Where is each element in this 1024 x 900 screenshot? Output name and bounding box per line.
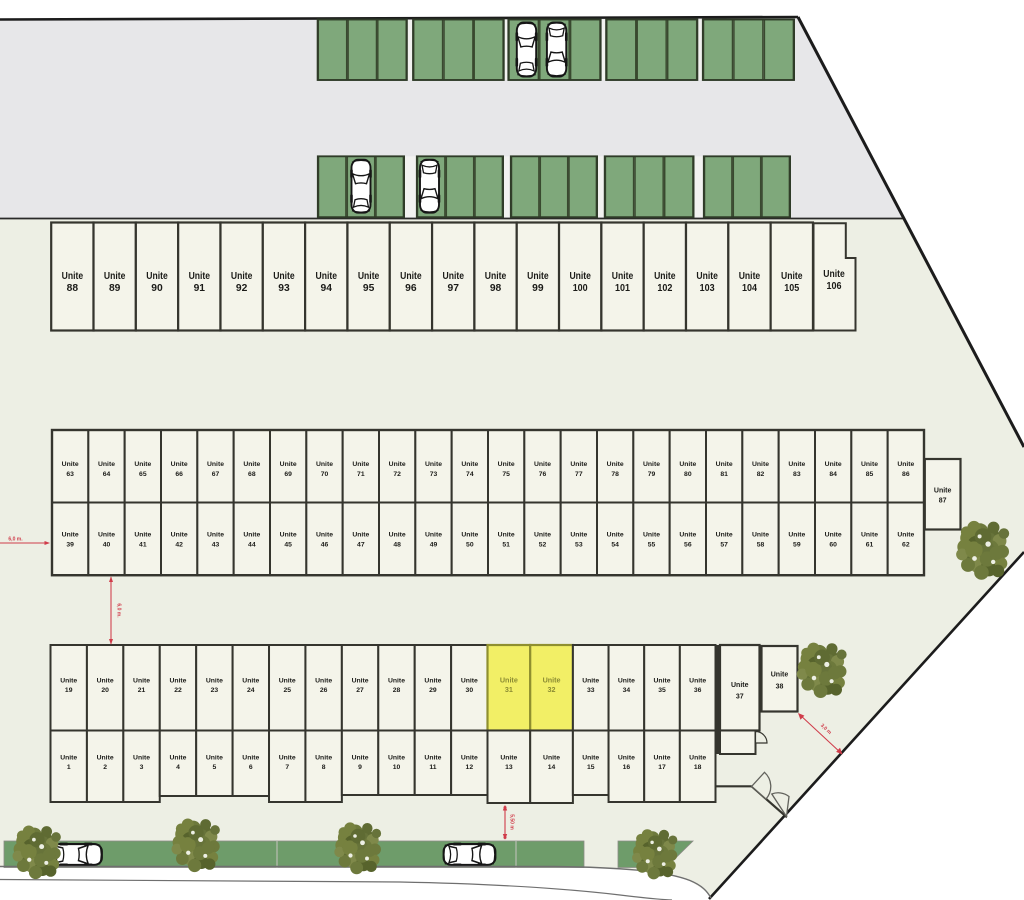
- svg-text:Unite: Unite: [388, 755, 405, 762]
- svg-text:5,50 m: 5,50 m: [509, 814, 515, 830]
- svg-text:103: 103: [700, 283, 715, 294]
- svg-text:Unite: Unite: [352, 678, 369, 685]
- svg-text:Unite: Unite: [134, 532, 151, 539]
- svg-text:Unite: Unite: [716, 532, 733, 539]
- svg-text:Unite: Unite: [582, 755, 599, 762]
- svg-text:87: 87: [939, 498, 947, 505]
- svg-text:95: 95: [363, 283, 375, 294]
- svg-text:53: 53: [575, 542, 583, 549]
- svg-text:Unite: Unite: [206, 678, 223, 685]
- svg-text:76: 76: [539, 471, 547, 478]
- svg-text:Unite: Unite: [618, 755, 635, 762]
- svg-text:Unite: Unite: [500, 755, 517, 762]
- svg-text:Unite: Unite: [461, 755, 478, 762]
- svg-text:69: 69: [284, 471, 292, 478]
- svg-text:40: 40: [103, 542, 111, 549]
- svg-text:1: 1: [67, 764, 71, 771]
- svg-text:Unite: Unite: [731, 682, 749, 689]
- svg-text:80: 80: [684, 471, 692, 478]
- svg-text:93: 93: [278, 283, 290, 294]
- svg-text:33: 33: [587, 687, 595, 694]
- svg-text:Unite: Unite: [543, 755, 560, 762]
- svg-text:Unite: Unite: [60, 755, 77, 762]
- svg-text:Unite: Unite: [498, 461, 515, 468]
- svg-text:Unite: Unite: [62, 461, 79, 468]
- svg-text:Unite: Unite: [788, 532, 805, 539]
- svg-text:Unite: Unite: [485, 271, 507, 282]
- svg-text:71: 71: [357, 471, 365, 478]
- svg-text:31: 31: [505, 685, 513, 694]
- svg-text:37: 37: [736, 694, 744, 701]
- svg-text:82: 82: [757, 471, 765, 478]
- svg-text:Unite: Unite: [424, 755, 441, 762]
- svg-text:6,0 m.: 6,0 m.: [8, 537, 23, 543]
- svg-text:96: 96: [405, 283, 417, 294]
- svg-text:Unite: Unite: [97, 678, 114, 685]
- svg-text:Unite: Unite: [352, 532, 369, 539]
- svg-text:47: 47: [357, 542, 365, 549]
- svg-text:55: 55: [648, 542, 656, 549]
- svg-text:Unite: Unite: [897, 461, 914, 468]
- svg-text:44: 44: [248, 542, 256, 549]
- svg-text:14: 14: [548, 764, 556, 771]
- svg-text:Unite: Unite: [134, 461, 151, 468]
- svg-text:13: 13: [505, 764, 513, 771]
- svg-text:Unite: Unite: [716, 461, 733, 468]
- svg-text:18: 18: [694, 764, 702, 771]
- svg-text:42: 42: [175, 542, 183, 549]
- svg-text:68: 68: [248, 471, 256, 478]
- svg-text:Unite: Unite: [352, 755, 369, 762]
- svg-text:Unite: Unite: [315, 678, 332, 685]
- svg-text:Unite: Unite: [679, 461, 696, 468]
- svg-text:15: 15: [587, 764, 595, 771]
- svg-text:Unite: Unite: [206, 755, 223, 762]
- svg-text:Unite: Unite: [389, 461, 406, 468]
- svg-text:49: 49: [430, 542, 438, 549]
- svg-text:Unite: Unite: [315, 755, 332, 762]
- svg-text:28: 28: [393, 687, 401, 694]
- svg-text:Unite: Unite: [643, 532, 660, 539]
- svg-text:7: 7: [285, 764, 289, 771]
- svg-text:102: 102: [657, 283, 672, 294]
- svg-text:Unite: Unite: [643, 461, 660, 468]
- svg-text:84: 84: [829, 471, 837, 478]
- svg-text:90: 90: [151, 283, 163, 294]
- svg-text:65: 65: [139, 471, 147, 478]
- svg-text:45: 45: [284, 542, 292, 549]
- svg-text:Unite: Unite: [582, 678, 599, 685]
- svg-text:4: 4: [176, 764, 180, 771]
- svg-text:Unite: Unite: [752, 532, 769, 539]
- svg-text:Unite: Unite: [861, 532, 878, 539]
- svg-text:70: 70: [321, 471, 329, 478]
- svg-text:Unite: Unite: [352, 461, 369, 468]
- svg-text:94: 94: [321, 283, 333, 294]
- svg-text:105: 105: [784, 283, 799, 294]
- svg-text:Unite: Unite: [689, 678, 706, 685]
- svg-text:91: 91: [194, 283, 206, 294]
- svg-text:Unite: Unite: [98, 532, 115, 539]
- svg-text:Unite: Unite: [242, 678, 259, 685]
- svg-text:Unite: Unite: [279, 755, 296, 762]
- svg-text:Unite: Unite: [442, 271, 464, 282]
- svg-text:Unite: Unite: [618, 678, 635, 685]
- svg-text:Unite: Unite: [425, 532, 442, 539]
- svg-text:Unite: Unite: [280, 532, 297, 539]
- svg-text:8: 8: [322, 764, 326, 771]
- svg-text:Unite: Unite: [146, 271, 168, 282]
- svg-text:104: 104: [742, 283, 757, 294]
- svg-text:Unite: Unite: [316, 532, 333, 539]
- svg-text:Unite: Unite: [570, 532, 587, 539]
- svg-text:75: 75: [502, 471, 510, 478]
- svg-text:Unite: Unite: [823, 269, 845, 280]
- svg-text:Unite: Unite: [62, 532, 79, 539]
- svg-text:62: 62: [902, 542, 910, 549]
- svg-text:27: 27: [356, 687, 364, 694]
- svg-text:Unite: Unite: [171, 532, 188, 539]
- svg-text:52: 52: [539, 542, 547, 549]
- svg-text:Unite: Unite: [461, 532, 478, 539]
- svg-text:21: 21: [138, 687, 146, 694]
- svg-text:88: 88: [67, 283, 79, 294]
- svg-text:89: 89: [109, 283, 121, 294]
- svg-text:25: 25: [283, 687, 291, 694]
- svg-text:48: 48: [393, 542, 401, 549]
- svg-text:46: 46: [321, 542, 329, 549]
- svg-text:92: 92: [236, 283, 248, 294]
- svg-text:73: 73: [430, 471, 438, 478]
- svg-text:74: 74: [466, 471, 474, 478]
- svg-text:Unite: Unite: [771, 672, 789, 679]
- svg-text:Unite: Unite: [825, 532, 842, 539]
- svg-text:Unite: Unite: [861, 461, 878, 468]
- svg-text:17: 17: [658, 764, 666, 771]
- svg-text:6,0 m.: 6,0 m.: [116, 603, 122, 618]
- svg-text:Unite: Unite: [500, 676, 518, 685]
- svg-text:59: 59: [793, 542, 801, 549]
- svg-text:Unite: Unite: [498, 532, 515, 539]
- svg-text:66: 66: [175, 471, 183, 478]
- svg-text:97: 97: [448, 283, 460, 294]
- svg-text:11: 11: [429, 764, 436, 771]
- svg-text:Unite: Unite: [389, 532, 406, 539]
- svg-text:98: 98: [490, 283, 502, 294]
- svg-text:9: 9: [358, 764, 362, 771]
- svg-text:101: 101: [615, 283, 630, 294]
- svg-text:106: 106: [827, 281, 842, 292]
- svg-text:Unite: Unite: [207, 532, 224, 539]
- svg-text:2: 2: [103, 764, 107, 771]
- svg-text:Unite: Unite: [461, 678, 478, 685]
- svg-text:Unite: Unite: [569, 271, 591, 282]
- svg-text:54: 54: [611, 542, 619, 549]
- svg-text:5: 5: [212, 764, 216, 771]
- svg-text:51: 51: [502, 542, 510, 549]
- svg-text:77: 77: [575, 471, 583, 478]
- svg-text:23: 23: [211, 687, 219, 694]
- svg-text:32: 32: [548, 685, 556, 694]
- svg-text:63: 63: [66, 471, 74, 478]
- svg-text:Unite: Unite: [358, 271, 380, 282]
- svg-text:3: 3: [140, 764, 144, 771]
- svg-text:43: 43: [212, 542, 220, 549]
- svg-text:Unite: Unite: [607, 532, 624, 539]
- svg-text:Unite: Unite: [654, 678, 671, 685]
- svg-text:Unite: Unite: [169, 755, 186, 762]
- svg-text:Unite: Unite: [752, 461, 769, 468]
- svg-text:Unite: Unite: [133, 678, 150, 685]
- svg-text:Unite: Unite: [104, 271, 126, 282]
- svg-text:Unite: Unite: [934, 488, 952, 495]
- svg-text:29: 29: [429, 687, 437, 694]
- svg-text:Unite: Unite: [570, 461, 587, 468]
- svg-text:72: 72: [393, 471, 401, 478]
- svg-text:50: 50: [466, 542, 474, 549]
- svg-text:6: 6: [249, 764, 253, 771]
- svg-text:22: 22: [174, 687, 182, 694]
- svg-text:Unite: Unite: [825, 461, 842, 468]
- svg-text:20: 20: [101, 687, 109, 694]
- svg-text:Unite: Unite: [242, 755, 259, 762]
- svg-text:Unite: Unite: [654, 271, 676, 282]
- svg-text:19: 19: [65, 687, 73, 694]
- svg-text:78: 78: [611, 471, 619, 478]
- svg-text:Unite: Unite: [739, 271, 761, 282]
- svg-text:Unite: Unite: [534, 461, 551, 468]
- svg-text:41: 41: [139, 542, 147, 549]
- svg-text:12: 12: [466, 764, 474, 771]
- svg-text:Unite: Unite: [316, 461, 333, 468]
- svg-text:34: 34: [623, 687, 631, 694]
- svg-text:56: 56: [684, 542, 692, 549]
- svg-text:35: 35: [658, 687, 666, 694]
- svg-text:61: 61: [866, 542, 874, 549]
- svg-text:10: 10: [393, 764, 401, 771]
- svg-text:Unite: Unite: [207, 461, 224, 468]
- svg-text:Unite: Unite: [400, 271, 422, 282]
- svg-text:Unite: Unite: [97, 755, 114, 762]
- svg-text:Unite: Unite: [527, 271, 549, 282]
- svg-text:Unite: Unite: [133, 755, 150, 762]
- svg-text:Unite: Unite: [273, 271, 295, 282]
- svg-text:64: 64: [103, 471, 111, 478]
- svg-text:Unite: Unite: [781, 271, 803, 282]
- svg-text:Unite: Unite: [231, 271, 253, 282]
- svg-text:100: 100: [573, 283, 588, 294]
- svg-text:Unite: Unite: [788, 461, 805, 468]
- svg-text:58: 58: [757, 542, 765, 549]
- svg-text:Unite: Unite: [607, 461, 624, 468]
- svg-text:24: 24: [247, 687, 255, 694]
- svg-text:Unite: Unite: [189, 271, 211, 282]
- svg-text:Unite: Unite: [243, 532, 260, 539]
- svg-text:Unite: Unite: [60, 678, 77, 685]
- svg-text:60: 60: [829, 542, 837, 549]
- svg-text:16: 16: [623, 764, 631, 771]
- svg-text:Unite: Unite: [171, 461, 188, 468]
- svg-text:83: 83: [793, 471, 801, 478]
- svg-text:Unite: Unite: [534, 532, 551, 539]
- svg-text:Unite: Unite: [388, 678, 405, 685]
- svg-text:30: 30: [466, 687, 474, 694]
- svg-text:Unite: Unite: [612, 271, 634, 282]
- svg-text:36: 36: [694, 687, 702, 694]
- svg-text:Unite: Unite: [169, 678, 186, 685]
- svg-text:39: 39: [66, 542, 74, 549]
- svg-text:Unite: Unite: [689, 755, 706, 762]
- svg-text:26: 26: [320, 687, 328, 694]
- svg-text:85: 85: [866, 471, 874, 478]
- svg-text:Unite: Unite: [696, 271, 718, 282]
- svg-text:79: 79: [648, 471, 656, 478]
- svg-text:57: 57: [720, 542, 728, 549]
- svg-text:38: 38: [776, 684, 784, 691]
- svg-text:Unite: Unite: [543, 676, 561, 685]
- svg-text:Unite: Unite: [279, 678, 296, 685]
- svg-text:Unite: Unite: [425, 461, 442, 468]
- svg-text:81: 81: [720, 471, 728, 478]
- svg-text:Unite: Unite: [424, 678, 441, 685]
- svg-text:Unite: Unite: [461, 461, 478, 468]
- svg-text:Unite: Unite: [679, 532, 696, 539]
- svg-text:Unite: Unite: [897, 532, 914, 539]
- svg-text:Unite: Unite: [316, 271, 338, 282]
- svg-text:67: 67: [212, 471, 220, 478]
- svg-text:86: 86: [902, 471, 910, 478]
- svg-text:Unite: Unite: [62, 271, 84, 282]
- svg-text:Unite: Unite: [654, 755, 671, 762]
- svg-text:99: 99: [532, 283, 544, 294]
- svg-text:Unite: Unite: [280, 461, 297, 468]
- svg-text:Unite: Unite: [98, 461, 115, 468]
- svg-text:Unite: Unite: [243, 461, 260, 468]
